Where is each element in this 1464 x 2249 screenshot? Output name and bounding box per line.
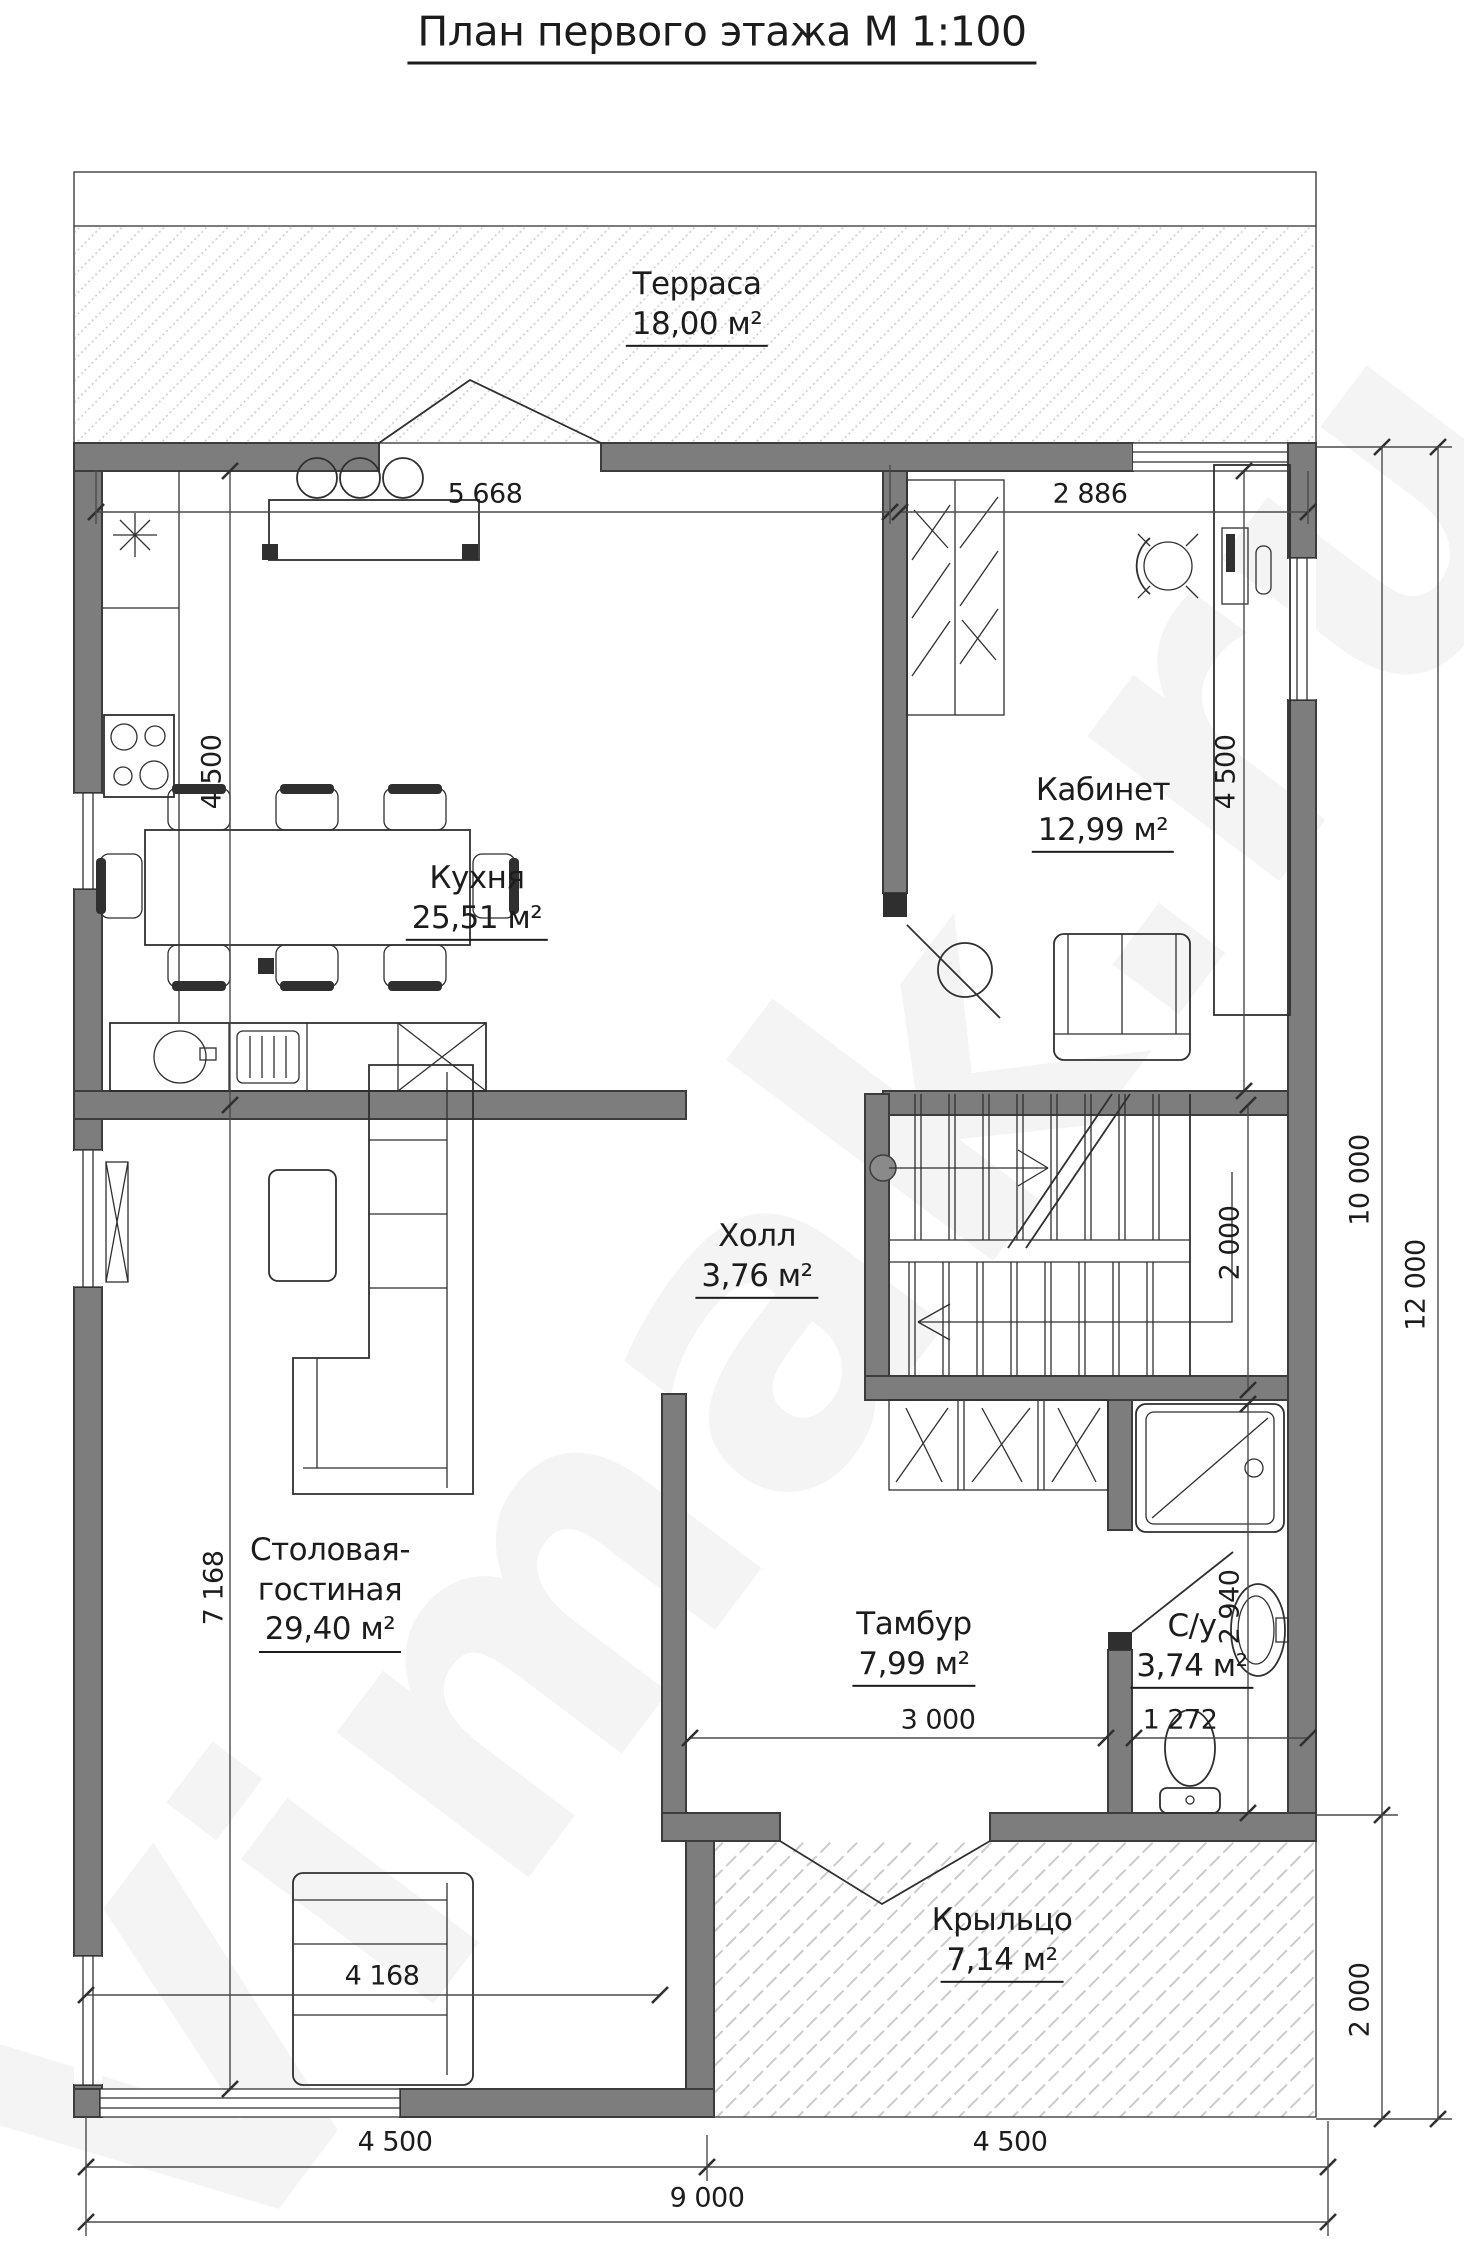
tv-unit	[106, 1162, 128, 1282]
dim-kitchen-height: 4 500	[197, 735, 228, 810]
dim-living-height: 7 168	[199, 1551, 230, 1626]
room-area: 12,99 м²	[1032, 811, 1174, 854]
column	[258, 958, 274, 974]
room-area: 29,40 м²	[259, 1610, 401, 1653]
dim-house-total-width: 9 000	[670, 2183, 745, 2214]
room-name: Тамбур	[852, 1605, 975, 1645]
room-label-hall: Холл 3,76 м²	[695, 1217, 818, 1299]
cabinet-door-leaf	[907, 925, 1000, 1018]
room-label-cabinet: Кабинет 12,99 м²	[1032, 771, 1174, 853]
cabinet-side-table	[938, 943, 992, 997]
room-name: Кухня	[406, 859, 548, 899]
fridge-symbol	[113, 513, 157, 557]
dim-cabinet-width: 2 886	[1053, 479, 1128, 510]
room-name: Крыльцо	[932, 1901, 1073, 1941]
stairs	[870, 1094, 1232, 1376]
kitchen-counter-bottom	[110, 1023, 486, 1091]
window-top-cabinet	[1133, 443, 1293, 471]
dim-bottom-left: 4 500	[358, 2127, 433, 2158]
room-label-vestibule: Тамбур 7,99 м²	[852, 1605, 975, 1687]
room-area: 7,99 м²	[852, 1645, 975, 1688]
kitchen-counter-left	[102, 471, 179, 1023]
cabinet-sofa	[1054, 934, 1190, 1060]
room-label-living: Столовая-гостиная 29,40 м²	[210, 1531, 450, 1653]
room-area: 7,14 м²	[940, 1941, 1063, 1984]
office-chair	[1137, 534, 1198, 598]
dim-cabinet-height: 4 500	[1211, 735, 1242, 810]
dim-house-total-height: 12 000	[1401, 1239, 1432, 1330]
corner-sofa	[293, 1065, 473, 1494]
window-right-cabinet	[1288, 558, 1316, 700]
dim-kitchen-width: 5 668	[448, 479, 523, 510]
dim-stairs-width: 2 000	[1215, 1206, 1246, 1281]
window-left-living	[74, 1150, 102, 1287]
room-area: 3,76 м²	[695, 1257, 818, 1300]
kitchen-sink	[154, 1031, 206, 1083]
cabinet-wardrobe	[907, 480, 1004, 715]
floor-plan-sheet: Vimak.ru	[0, 0, 1464, 2249]
doors	[379, 380, 1233, 1904]
room-label-terrace: Терраса 18,00 м²	[626, 265, 768, 347]
coffee-table	[269, 1170, 336, 1281]
room-label-kitchen: Кухня 25,51 м²	[406, 859, 548, 941]
dim-wc-width: 1 272	[1143, 1705, 1218, 1736]
room-area: 18,00 м²	[626, 305, 768, 348]
room-name: Терраса	[626, 265, 768, 305]
room-area: 25,51 м²	[406, 899, 548, 942]
room-name: Холл	[695, 1217, 818, 1257]
shower-tray	[1136, 1404, 1284, 1532]
dim-wc-height: 2 940	[1215, 1570, 1246, 1645]
dim-porch-height: 2 000	[1345, 1963, 1376, 2038]
room-area: 3,74 м²	[1130, 1647, 1253, 1690]
hall-closet	[889, 1400, 1108, 1490]
page-title: План первого этажа М 1:100	[407, 8, 1036, 65]
dim-bottom-right: 4 500	[973, 2127, 1048, 2158]
dim-vestibule-width: 3 000	[901, 1705, 976, 1736]
dim-sofa-width: 4 168	[345, 1961, 420, 1992]
window-left-living2	[74, 1956, 102, 2085]
window-bottom-living	[100, 2089, 400, 2117]
room-label-porch: Крыльцо 7,14 м²	[932, 1901, 1073, 1983]
room-name: Кабинет	[1032, 771, 1174, 811]
room-name: Столовая-гостиная	[210, 1531, 450, 1610]
kitchen-island	[262, 458, 479, 560]
dim-house-inner-height: 10 000	[1345, 1134, 1376, 1225]
